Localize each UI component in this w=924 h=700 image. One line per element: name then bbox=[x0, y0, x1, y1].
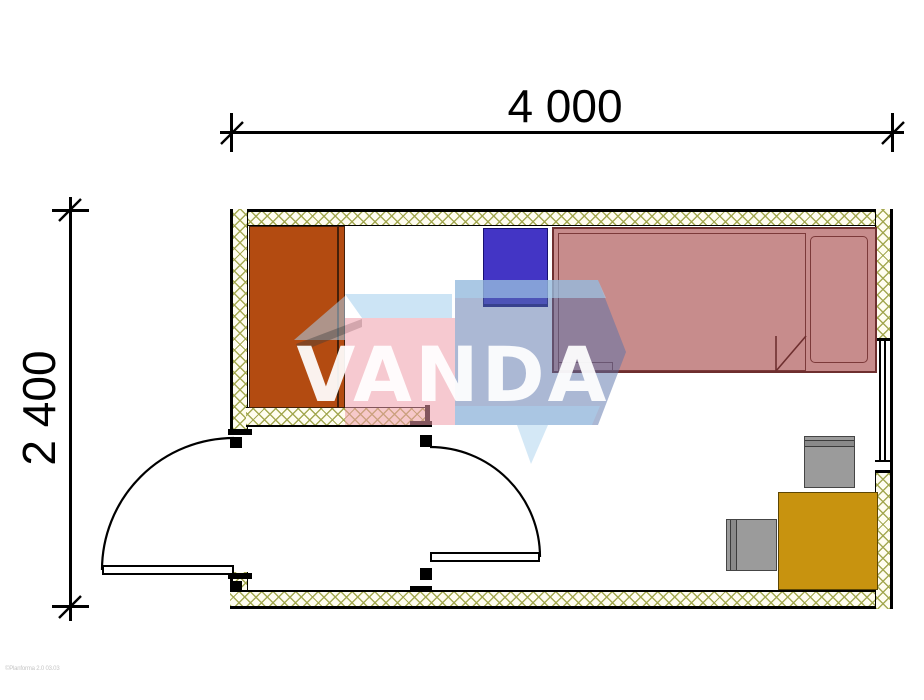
floor-plan-canvas: 4 000 2 400 bbox=[0, 0, 924, 700]
watermark-lightblue-band-top bbox=[455, 280, 606, 298]
footer-note: ©Planforma 2.0 03.03 bbox=[5, 666, 59, 673]
watermark-lightblue-tail bbox=[517, 425, 548, 464]
vanda-watermark: VANDA bbox=[0, 0, 924, 700]
watermark-lightblue-top-face bbox=[345, 294, 452, 318]
watermark-text: VANDA bbox=[297, 330, 610, 419]
